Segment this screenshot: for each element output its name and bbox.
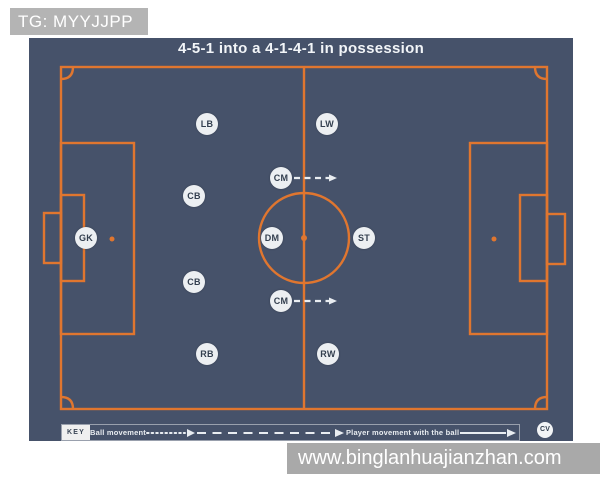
player-marker-gk: GK	[75, 227, 97, 249]
player-marker-lw: LW	[316, 113, 338, 135]
player-marker-lb: LB	[196, 113, 218, 135]
player-marker-cm: CM	[270, 290, 292, 312]
legend-ball-movement-label: Ball movement	[90, 428, 146, 437]
player-marker-dm: DM	[261, 227, 283, 249]
players-layer: GKLBCBCBRBCMDMCMLWSTRW	[0, 0, 600, 480]
player-marker-rb: RB	[196, 343, 218, 365]
legend-key-chip: KEY	[62, 425, 90, 440]
player-marker-st: ST	[353, 227, 375, 249]
player-marker-rw: RW	[317, 343, 339, 365]
player-movement-dashed-arrow-icon	[196, 428, 346, 438]
cv-badge: CV	[537, 422, 553, 438]
legend-bar: KEY Ball movement Player movement with t…	[61, 424, 520, 441]
player-marker-cb: CB	[183, 271, 205, 293]
player-marker-cm: CM	[270, 167, 292, 189]
player-marker-cb: CB	[183, 185, 205, 207]
ball-movement-dotted-arrow-icon	[146, 428, 196, 438]
player-movement-with-ball-solid-arrow-icon	[459, 428, 517, 438]
legend-player-movement-with-ball-label: Player movement with the ball	[346, 428, 459, 437]
watermark-bottom: www.binglanhuajianzhan.com	[287, 443, 600, 474]
screenshot-root: TG: MYYJJPP 4-5-1 into a 4-1-4-1 in poss…	[0, 0, 600, 480]
